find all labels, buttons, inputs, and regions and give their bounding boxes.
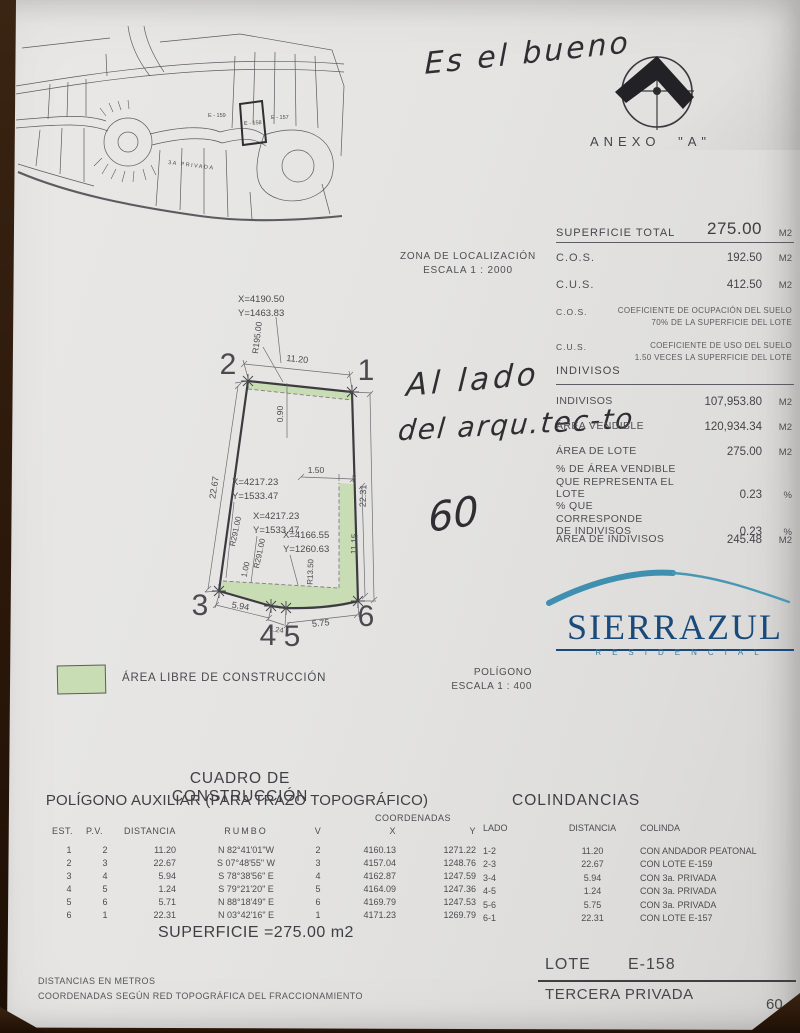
cuadro-cell: 4171.23 bbox=[334, 909, 412, 922]
anexo-title: ANEXO "A" bbox=[590, 134, 711, 149]
superficie-total-row: SUPERFICIE TOTAL 275.00 M2 bbox=[556, 219, 792, 239]
cuadro-cell: 5 bbox=[52, 896, 86, 909]
radius-left2-label: R291.00 bbox=[252, 537, 267, 569]
photographed-document: E - 159 E - 158 E - 157 3A PRIVADA Es el… bbox=[0, 0, 800, 1033]
cuadro-cell: 1247.53 bbox=[412, 896, 492, 909]
colindancia-cell: 4-5 bbox=[483, 885, 545, 899]
cus-note-label: C.U.S. bbox=[556, 340, 587, 363]
cuadro-cell: 1.24 bbox=[124, 883, 190, 896]
superficie-total-unit: M2 bbox=[762, 228, 792, 239]
vertex-number-5: 5 bbox=[284, 620, 301, 650]
cuadro-cell: 3 bbox=[52, 870, 86, 883]
legend-label: ÁREA LIBRE DE CONSTRUCCIÓN bbox=[122, 672, 326, 684]
cuadro-cell: 5.94 bbox=[124, 870, 190, 883]
map-lot-right-label: E - 157 bbox=[271, 115, 289, 121]
cuadro-cell: 1 bbox=[302, 909, 334, 922]
cuadro-cell: 4 bbox=[86, 870, 124, 883]
cuadro-cell: 6 bbox=[302, 896, 334, 909]
cuadro-cell: 1271.22 bbox=[412, 844, 492, 857]
header-y: Y bbox=[412, 825, 492, 838]
cuadro-cell: S 78°38'56" E bbox=[190, 870, 302, 883]
map-street-label: 3A PRIVADA bbox=[168, 160, 215, 172]
superficie-total-label: SUPERFICIE TOTAL bbox=[556, 227, 707, 239]
indivisos-label: INDIVISOS bbox=[556, 395, 682, 408]
cuadro-cell: 1247.36 bbox=[412, 883, 492, 896]
area-lote-label: ÁREA DE LOTE bbox=[556, 445, 682, 458]
cuadro-cell: 1 bbox=[52, 844, 86, 857]
cuadro-cell: N 82°41'01"W bbox=[190, 844, 302, 857]
top-coord-y: Y=1463.83 bbox=[238, 308, 284, 319]
pct-indivisos-row: % QUE CORRESPONDE DE INDIVISOS 0.23 % bbox=[556, 500, 792, 538]
header-est: EST. bbox=[52, 825, 86, 838]
map-lot-center-label: E - 158 bbox=[244, 120, 262, 127]
colindancia-cell: CON 3a. PRIVADA bbox=[640, 872, 800, 886]
cuadro-cell: S 07°48'55" W bbox=[190, 857, 302, 870]
vertex-number-2: 2 bbox=[220, 348, 237, 381]
header-pv: P.V. bbox=[86, 825, 124, 838]
cuadro-cell: 2 bbox=[86, 844, 124, 857]
header-distancia: DISTANCIA bbox=[124, 825, 190, 838]
cuadro-cell: 1269.79 bbox=[412, 909, 492, 922]
cuadro-cell: 4 bbox=[52, 883, 86, 896]
cuadro-cell: 1247.59 bbox=[412, 870, 492, 883]
cos-note-label: C.O.S. bbox=[556, 305, 588, 328]
pct-indivisos-line1: % QUE CORRESPONDE bbox=[556, 500, 643, 525]
top-coord-x: X=4190.50 bbox=[238, 294, 284, 305]
coord1-y: Y=1533.47 bbox=[232, 491, 278, 502]
pct-vendible-line2: QUE REPRESENTA EL LOTE bbox=[556, 476, 674, 501]
colindancia-cell: CON ANDADOR PEATONAL bbox=[640, 845, 800, 859]
cus-value: 412.50 bbox=[682, 279, 762, 291]
brand-swoosh bbox=[470, 566, 796, 611]
vertex-number-4: 4 bbox=[260, 619, 277, 650]
zona-localizacion: ZONA DE LOCALIZACIÓN ESCALA 1 : 2000 bbox=[398, 250, 538, 278]
colindancia-cell: 22.67 bbox=[545, 858, 640, 872]
cuadro-cell: 1248.76 bbox=[412, 857, 492, 870]
dim-top-label: 11.20 bbox=[286, 353, 309, 365]
cos-label: C.O.S. bbox=[556, 252, 682, 264]
vertex-marker-3 bbox=[212, 584, 226, 598]
cos-note-line1: COEFICIENTE DE OCUPACIÓN DEL SUELO bbox=[618, 306, 792, 315]
cos-note-line2: 70% DE LA SUPERFICIE DEL LOTE bbox=[652, 318, 792, 327]
cuadro-subtitle: POLÍGONO AUXILIAR (PARA TRAZO TOPOGRÁFIC… bbox=[42, 792, 432, 809]
colindancia-cell: 5.94 bbox=[545, 872, 640, 886]
cuadro-cell: 22.31 bbox=[124, 909, 190, 922]
map-lot-left-label: E - 159 bbox=[208, 113, 226, 119]
brand-subtitle: RESIDENCIAL bbox=[558, 648, 796, 657]
header-x: X bbox=[334, 825, 412, 838]
dim-top-offset-label: 0.90 bbox=[275, 405, 285, 422]
coord3-y: Y=1260.63 bbox=[283, 544, 329, 555]
lote-label: LOTE bbox=[545, 956, 591, 974]
colindancia-cell: 1.24 bbox=[545, 885, 640, 899]
location-map: E - 159 E - 158 E - 157 3A PRIVADA bbox=[10, 24, 350, 224]
vertex-number-3: 3 bbox=[192, 589, 209, 622]
vertex-marker-4 bbox=[264, 599, 278, 613]
header-coordenadas: COORDENADAS bbox=[334, 812, 492, 825]
colindancia-cell: 5.75 bbox=[545, 899, 640, 913]
cuadro-cell: 22.67 bbox=[124, 857, 190, 870]
area-vendible-row: ÁREA VENDIBLE 120,934.34 M2 bbox=[556, 420, 792, 433]
cuadro-cell: 4162.87 bbox=[334, 870, 412, 883]
coord1-x: X=4217.23 bbox=[232, 477, 278, 488]
cuadro-cell: S 79°21'20" E bbox=[190, 883, 302, 896]
cuadro-cell: N 03°42'16" E bbox=[190, 909, 302, 922]
header-colinda: COLINDA bbox=[640, 822, 800, 836]
radius-left1-label: R291.00 bbox=[228, 515, 243, 547]
divider bbox=[556, 384, 794, 385]
cus-row: C.U.S. 412.50 M2 bbox=[556, 279, 792, 291]
header-rumbo: RUMBO bbox=[190, 825, 302, 838]
area-indivisos-value: 245.48 bbox=[682, 534, 762, 546]
dim-bottom3-label: 5.75 bbox=[311, 617, 329, 629]
lot-polygon-drawing: X=4190.50 Y=1463.83 R195.00 11.20 0.90 2… bbox=[180, 290, 470, 650]
footer-notes: DISTANCIAS EN METROS COORDENADAS SEGÚN R… bbox=[38, 974, 363, 1004]
cuadro-cell: 11.20 bbox=[124, 844, 190, 857]
cus-note: C.U.S. COEFICIENTE DE USO DEL SUELO 1.50… bbox=[556, 340, 792, 363]
cuadro-cell: N 88°18'49" E bbox=[190, 896, 302, 909]
poligono-line1: POLÍGONO bbox=[428, 666, 532, 680]
footer-note1: DISTANCIAS EN METROS bbox=[38, 974, 363, 989]
cuadro-cell: 4164.09 bbox=[334, 883, 412, 896]
lote-value: E-158 bbox=[628, 956, 676, 974]
pct-vendible-unit: % bbox=[762, 490, 792, 501]
cuadro-cell: 3 bbox=[86, 857, 124, 870]
cuadro-cell: 2 bbox=[52, 857, 86, 870]
cus-label: C.U.S. bbox=[556, 279, 682, 291]
colindancia-cell: 6-1 bbox=[483, 912, 545, 926]
indivisos-row: INDIVISOS 107,953.80 M2 bbox=[556, 395, 792, 408]
cuadro-cell: 6 bbox=[86, 896, 124, 909]
vertex-marker-2 bbox=[241, 374, 255, 388]
pct-vendible-line1: % DE ÁREA VENDIBLE bbox=[556, 463, 676, 475]
area-indivisos-unit: M2 bbox=[762, 535, 792, 546]
zona-line2: ESCALA 1 : 2000 bbox=[398, 264, 538, 278]
footer-divider bbox=[538, 980, 796, 982]
cuadro-cell: 5 bbox=[86, 883, 124, 896]
colindancia-cell: CON LOTE E-159 bbox=[640, 858, 800, 872]
legend-green-swatch bbox=[57, 664, 107, 694]
area-vendible-unit: M2 bbox=[762, 422, 792, 433]
colindancia-cell: 2-3 bbox=[483, 858, 545, 872]
header-v: V bbox=[302, 825, 334, 838]
cos-unit: M2 bbox=[762, 253, 792, 264]
cuadro-table: COORDENADAS EST. P.V. DISTANCIA RUMBO V … bbox=[52, 812, 492, 922]
cuadro-cell: 4169.79 bbox=[334, 896, 412, 909]
cuadro-cell: 6 bbox=[52, 909, 86, 922]
area-indivisos-label: ÁREA DE INDIVISOS bbox=[556, 533, 682, 546]
colindancias-title: COLINDANCIAS bbox=[512, 792, 640, 810]
logo-chevron bbox=[615, 56, 694, 109]
dim-strip-label: 1.00 bbox=[240, 560, 252, 578]
dim-notch-label: 1.50 bbox=[308, 465, 325, 475]
vertex-marker-5 bbox=[279, 601, 293, 615]
cos-note: C.O.S. COEFICIENTE DE OCUPACIÓN DEL SUEL… bbox=[556, 305, 792, 328]
pct-vendible-row: % DE ÁREA VENDIBLE QUE REPRESENTA EL LOT… bbox=[556, 463, 792, 501]
coord3-x: X=4166.55 bbox=[283, 530, 329, 541]
indivisos-unit: M2 bbox=[762, 397, 792, 408]
area-vendible-value: 120,934.34 bbox=[682, 421, 762, 433]
area-lote-row: ÁREA DE LOTE 275.00 M2 bbox=[556, 445, 792, 458]
colindancia-cell: 11.20 bbox=[545, 845, 640, 859]
colindancia-cell: 22.31 bbox=[545, 912, 640, 926]
cuadro-cell: 4160.13 bbox=[334, 844, 412, 857]
vertex-marker-1 bbox=[345, 385, 359, 399]
vertex-number-6: 6 bbox=[358, 600, 375, 633]
area-vendible-label: ÁREA VENDIBLE bbox=[556, 420, 682, 433]
footer-note2: COORDENADAS SEGÚN RED TOPOGRÁFICA DEL FR… bbox=[38, 989, 363, 1004]
header-distancia: DISTANCIA bbox=[545, 822, 640, 836]
privada-label: TERCERA PRIVADA bbox=[545, 986, 694, 1003]
area-lote-unit: M2 bbox=[762, 447, 792, 458]
coord2-x: X=4217.23 bbox=[253, 511, 299, 522]
superficie-panel: SUPERFICIE TOTAL 275.00 M2 C.O.S. 192.50… bbox=[556, 215, 794, 560]
cuadro-cell: 4 bbox=[302, 870, 334, 883]
cus-unit: M2 bbox=[762, 280, 792, 291]
cuadro-cell: 1 bbox=[86, 909, 124, 922]
superficie-total-value: 275.00 bbox=[707, 219, 762, 239]
cuadro-superficie: SUPERFICIE =275.00 m2 bbox=[158, 924, 354, 942]
pct-vendible-value: 0.23 bbox=[682, 489, 762, 501]
logo-center-dot bbox=[653, 87, 661, 95]
area-indivisos-row: ÁREA DE INDIVISOS 245.48 M2 bbox=[556, 533, 792, 546]
cuadro-cell: 2 bbox=[302, 844, 334, 857]
header-lado: LADO bbox=[483, 822, 545, 836]
cus-note-line2: 1.50 VECES LA SUPERFICIE DEL LOTE bbox=[635, 353, 792, 362]
cos-value: 192.50 bbox=[682, 252, 762, 264]
dim-right-label: 22.31 bbox=[358, 484, 369, 507]
cuadro-cell: 3 bbox=[302, 857, 334, 870]
colindancia-cell: CON 3a. PRIVADA bbox=[640, 885, 800, 899]
colindancia-cell: CON 3a. PRIVADA bbox=[640, 899, 800, 913]
indivisos-value: 107,953.80 bbox=[682, 396, 762, 408]
dim-left-label: 22.67 bbox=[207, 476, 220, 500]
colindancias-table: LADO DISTANCIA COLINDA 1-2 11.20 CON AND… bbox=[483, 822, 800, 926]
divider bbox=[556, 242, 794, 243]
cuadro-cell: 4157.04 bbox=[334, 857, 412, 870]
radius-top-label: R195.00 bbox=[250, 321, 264, 354]
page-number: 60 bbox=[766, 996, 783, 1013]
area-lote-value: 275.00 bbox=[682, 446, 762, 458]
cus-note-line1: COEFICIENTE DE USO DEL SUELO bbox=[650, 341, 792, 350]
indivisos-title: INDIVISOS bbox=[556, 365, 792, 377]
surveyor-logo bbox=[610, 50, 710, 135]
zona-line1: ZONA DE LOCALIZACIÓN bbox=[398, 250, 538, 264]
brand-name: SIERRAZUL bbox=[556, 606, 794, 651]
cuadro-cell: 5 bbox=[302, 883, 334, 896]
poligono-line2: ESCALA 1 : 400 bbox=[428, 680, 532, 694]
cos-row: C.O.S. 192.50 M2 bbox=[556, 252, 792, 264]
poligono-escala: POLÍGONO ESCALA 1 : 400 bbox=[428, 666, 532, 694]
map-boundary bbox=[22, 38, 110, 48]
dim-right-inner-label: 11.15 bbox=[349, 533, 360, 554]
radius-corner-label: R13.50 bbox=[306, 558, 316, 585]
colindancia-cell: 1-2 bbox=[483, 845, 545, 859]
colindancia-cell: 3-4 bbox=[483, 872, 545, 886]
cuadro-cell: 5.71 bbox=[124, 896, 190, 909]
dim-bottom1-label: 5.94 bbox=[231, 600, 250, 613]
colindancia-cell: 5-6 bbox=[483, 899, 545, 913]
colindancia-cell: CON LOTE E-157 bbox=[640, 912, 800, 926]
vertex-number-1: 1 bbox=[358, 354, 375, 387]
